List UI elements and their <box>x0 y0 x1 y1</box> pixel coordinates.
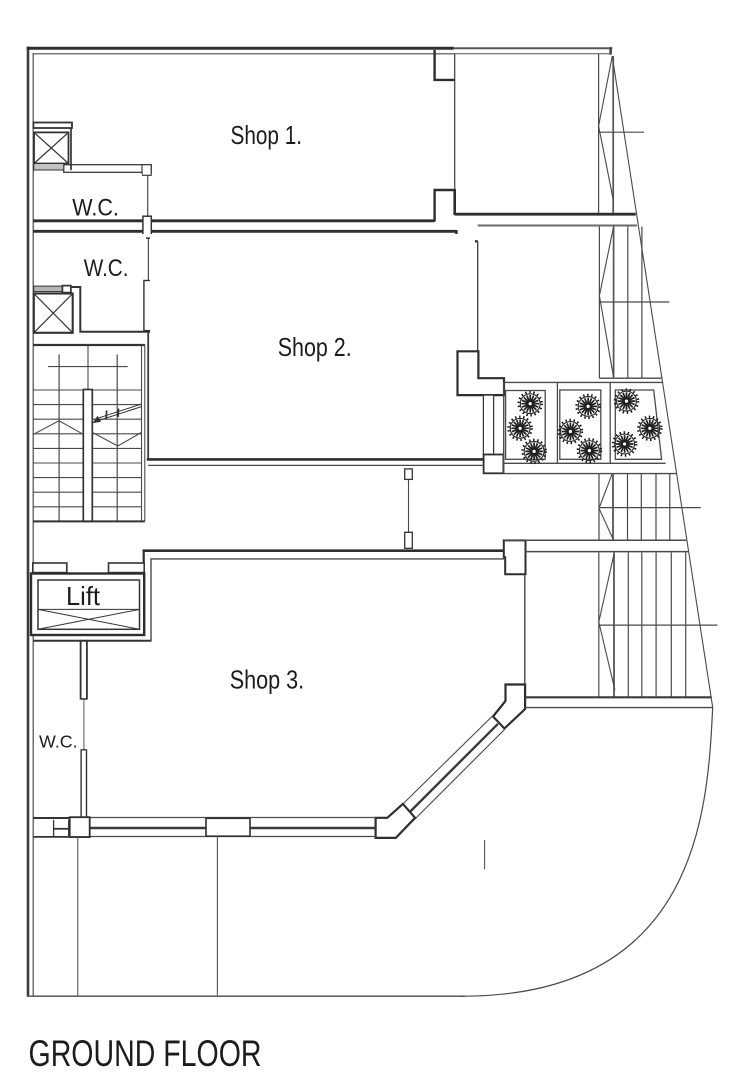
svg-text:W.C.: W.C. <box>84 255 129 282</box>
svg-text:Lift: Lift <box>66 581 101 611</box>
svg-text:Shop 3.: Shop 3. <box>230 665 305 695</box>
svg-text:W.C.: W.C. <box>72 195 119 222</box>
svg-text:W.C.: W.C. <box>39 732 78 752</box>
svg-text:GROUND FLOOR: GROUND FLOOR <box>29 1033 262 1074</box>
svg-text:Shop 2.: Shop 2. <box>278 332 352 362</box>
svg-text:Shop 1.: Shop 1. <box>231 120 303 150</box>
